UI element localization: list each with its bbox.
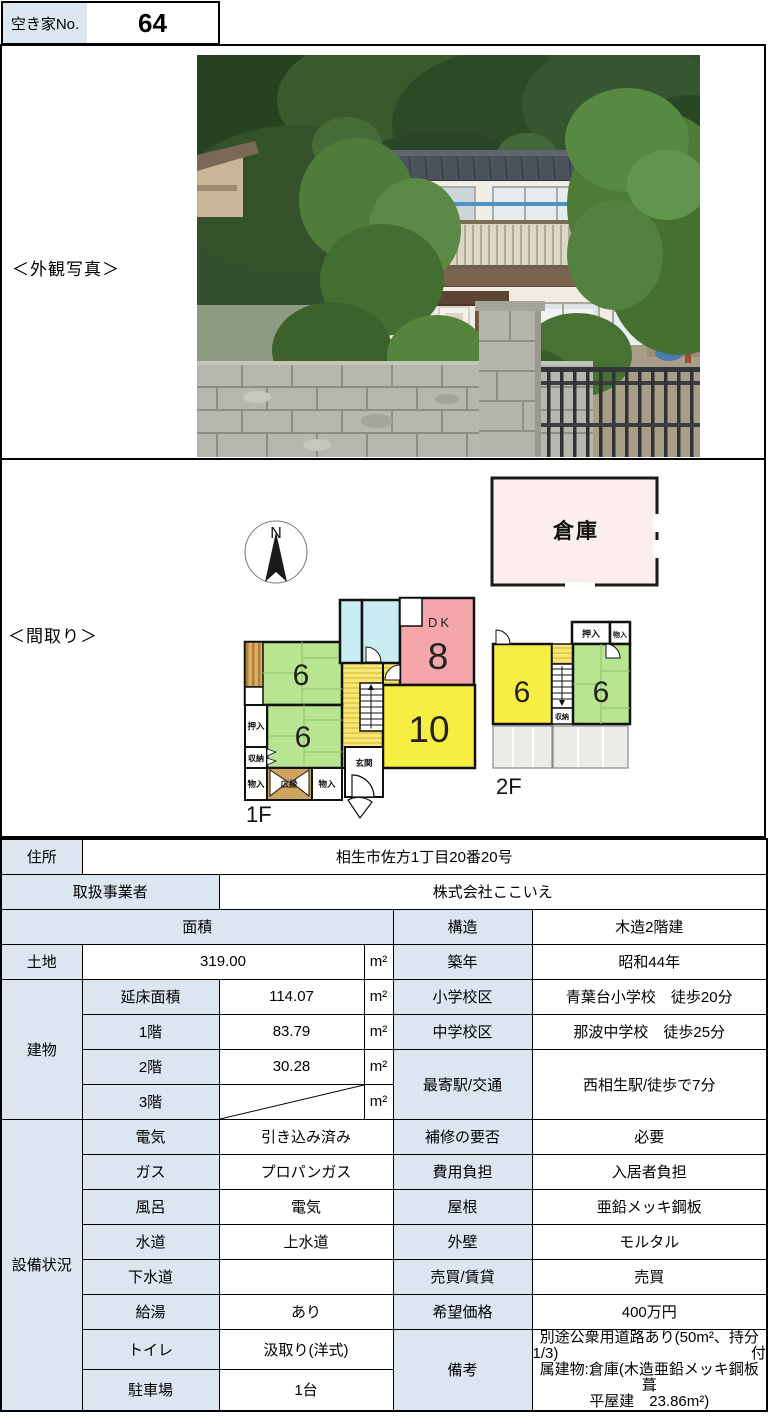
building-label: 建物 <box>1 979 82 1119</box>
building-unit: m² <box>364 1014 393 1049</box>
f2-caption: 2F <box>496 774 522 799</box>
building-row-1: 1階 83.79 m² 中学校区 那波中学校 徒歩25分 <box>1 1014 767 1049</box>
right-label: 希望価格 <box>393 1294 532 1329</box>
elementary-label: 小学校区 <box>393 979 532 1014</box>
area-header: 面積 <box>1 909 393 944</box>
f1-entrance-label: 玄関 <box>355 758 372 768</box>
facility-value: 引き込み済み <box>219 1119 393 1154</box>
floor2-plan: 6 6 押入 物入 収納 <box>493 622 630 768</box>
right-value: 必要 <box>532 1119 767 1154</box>
facility-sublabel: 下水道 <box>82 1259 219 1294</box>
f1-dk-label: DK <box>428 615 452 630</box>
house-number-value: 64 <box>87 3 218 43</box>
area-header-row: 面積 構造 木造2階建 <box>1 909 767 944</box>
building-value-empty <box>219 1084 364 1119</box>
remarks-line2-right: 付 <box>751 1346 766 1362</box>
floorplan-drawing: N 倉庫 <box>0 462 766 836</box>
diagonal-strike <box>220 1085 364 1119</box>
facility-value: 汲取り(洋式) <box>219 1329 393 1370</box>
f2-shuno-label: 収納 <box>555 712 569 721</box>
right-label: 補修の要否 <box>393 1119 532 1154</box>
f2-room-right-size: 6 <box>593 676 610 709</box>
property-table: 住所 相生市佐方1丁目20番20号 取扱事業者 株式会社ここいえ 面積 構造 木… <box>0 838 768 1412</box>
building-value: 83.79 <box>219 1014 364 1049</box>
land-unit: m² <box>364 944 393 979</box>
right-label: 屋根 <box>393 1189 532 1224</box>
facility-row-2: 風呂 電気 屋根 亜鉛メッキ鋼板 <box>1 1189 767 1224</box>
f2-monoire-label: 物入 <box>613 630 627 639</box>
facility-row-5: 給湯 あり 希望価格 400万円 <box>1 1294 767 1329</box>
land-area-value: 319.00 <box>82 944 364 979</box>
vacant-house-sheet: 空き家No. 64 ＜外観写真＞ ＜間取り＞ <box>0 0 782 1420</box>
facility-sublabel: トイレ <box>82 1329 219 1370</box>
structure-value: 木造2階建 <box>532 909 767 944</box>
exterior-photo-label: ＜外観写真＞ <box>12 255 120 280</box>
building-unit: m² <box>364 1049 393 1084</box>
agent-label: 取扱事業者 <box>1 874 219 909</box>
agent-value: 株式会社ここいえ <box>219 874 767 909</box>
building-unit: m² <box>364 1084 393 1119</box>
f1-oshiire-label: 押入 <box>247 721 265 731</box>
remarks-line2-left: 1/3) <box>533 1346 559 1362</box>
f1-dk-size: 8 <box>428 636 449 677</box>
f1-shuno-label: 収納 <box>248 753 264 763</box>
f1-room-upper-size: 6 <box>293 659 310 692</box>
f1-veranda-label: 広縁 <box>280 779 298 789</box>
facility-value: あり <box>219 1294 393 1329</box>
right-label: 外壁 <box>393 1224 532 1259</box>
building-value: 114.07 <box>219 979 364 1014</box>
house-number-label: 空き家No. <box>3 3 87 43</box>
structure-label: 構造 <box>393 909 532 944</box>
building-value: 30.28 <box>219 1049 364 1084</box>
address-label: 住所 <box>1 839 82 874</box>
f1-monoire-left-label: 物入 <box>247 779 265 789</box>
land-row: 土地 319.00 m² 築年 昭和44年 <box>1 944 767 979</box>
facility-sublabel: 電気 <box>82 1119 219 1154</box>
f1-caption: 1F <box>246 802 272 827</box>
facility-row-1: ガス プロパンガス 費用負担 入居者負担 <box>1 1154 767 1189</box>
right-value: 入居者負担 <box>532 1154 767 1189</box>
house-number-box: 空き家No. 64 <box>1 1 220 45</box>
f2-oshiire-label: 押入 <box>582 628 600 639</box>
building-row-0: 建物 延床面積 114.07 m² 小学校区 青葉台小学校 徒歩20分 <box>1 979 767 1014</box>
facility-sublabel: 給湯 <box>82 1294 219 1329</box>
remarks-value: 別途公衆用道路あり(50m²、持分 1/3) 付 属建物:倉庫(木造亜鉛メッキ鋼… <box>532 1329 767 1411</box>
facility-sublabel: 駐車場 <box>82 1370 219 1411</box>
f1-living-size: 10 <box>408 709 449 750</box>
right-value: 400万円 <box>532 1294 767 1329</box>
f1-room-lower-size: 6 <box>295 721 312 754</box>
right-label: 費用負担 <box>393 1154 532 1189</box>
facility-value: プロパンガス <box>219 1154 393 1189</box>
station-value: 西相生駅/徒歩で7分 <box>532 1049 767 1119</box>
facility-row-0: 設備状況 電気 引き込み済み 補修の要否 必要 <box>1 1119 767 1154</box>
f1-monoire-right-label: 物入 <box>318 779 336 789</box>
remarks-line1: 別途公衆用道路あり(50m²、持分 <box>533 1330 767 1346</box>
built-year-label: 築年 <box>393 944 532 979</box>
land-label: 土地 <box>1 944 82 979</box>
warehouse-plan: 倉庫 <box>492 478 660 589</box>
right-value: 売買 <box>532 1259 767 1294</box>
warehouse-label: 倉庫 <box>552 519 599 543</box>
north-compass: N <box>245 521 307 583</box>
station-label: 最寄駅/交通 <box>393 1049 532 1119</box>
right-value: モルタル <box>532 1224 767 1259</box>
building-sublabel: 2階 <box>82 1049 219 1084</box>
building-sublabel: 1階 <box>82 1014 219 1049</box>
built-year-value: 昭和44年 <box>532 944 767 979</box>
facility-row-4: 下水道 売買/賃貸 売買 <box>1 1259 767 1294</box>
facility-sublabel: 風呂 <box>82 1189 219 1224</box>
facility-sublabel: ガス <box>82 1154 219 1189</box>
elementary-value: 青葉台小学校 徒歩20分 <box>532 979 767 1014</box>
remarks-label: 備考 <box>393 1329 532 1411</box>
facility-value: 上水道 <box>219 1224 393 1259</box>
right-label: 売買/賃貸 <box>393 1259 532 1294</box>
facility-value <box>219 1259 393 1294</box>
facility-row-3: 水道 上水道 外壁 モルタル <box>1 1224 767 1259</box>
facility-sublabel: 水道 <box>82 1224 219 1259</box>
section-divider <box>0 458 766 460</box>
remarks-line4: 平屋建 23.86m²) <box>533 1394 767 1410</box>
building-row-2: 2階 30.28 m² 最寄駅/交通 西相生駅/徒歩で7分 <box>1 1049 767 1084</box>
f2-room-left-size: 6 <box>514 676 531 709</box>
junior-high-value: 那波中学校 徒歩25分 <box>532 1014 767 1049</box>
right-value: 亜鉛メッキ鋼板 <box>532 1189 767 1224</box>
remarks-line2: 1/3) 付 <box>533 1346 767 1362</box>
exterior-photo <box>197 55 700 457</box>
facility-row-6: トイレ 汲取り(洋式) 備考 別途公衆用道路あり(50m²、持分 1/3) 付 … <box>1 1329 767 1370</box>
agent-row: 取扱事業者 株式会社ここいえ <box>1 874 767 909</box>
junior-high-label: 中学校区 <box>393 1014 532 1049</box>
remarks-line3: 属建物:倉庫(木造亜鉛メッキ鋼板葺 <box>533 1362 767 1394</box>
floor1-plan: 6 6 DK 8 10 押入 収納 物入 広縁 物入 玄関 <box>245 598 475 818</box>
facility-value: 1台 <box>219 1370 393 1411</box>
wall-pillar-cap <box>475 301 545 311</box>
address-row: 住所 相生市佐方1丁目20番20号 <box>1 839 767 874</box>
building-unit: m² <box>364 979 393 1014</box>
building-sublabel: 延床面積 <box>82 979 219 1014</box>
facility-value: 電気 <box>219 1189 393 1224</box>
building-sublabel: 3階 <box>82 1084 219 1119</box>
address-value: 相生市佐方1丁目20番20号 <box>82 839 767 874</box>
facilities-label: 設備状況 <box>1 1119 82 1411</box>
